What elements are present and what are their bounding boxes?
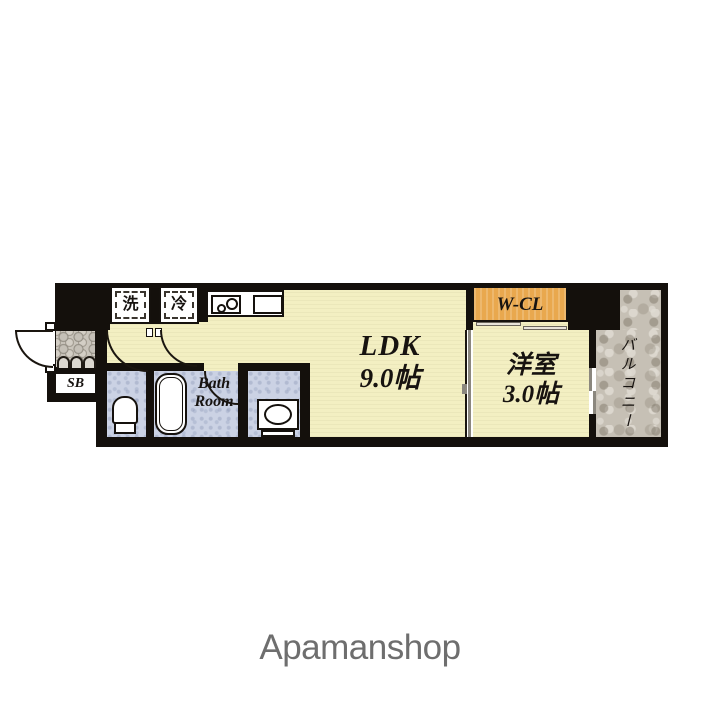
walk-in-closet-label: W-CL — [497, 295, 544, 314]
brand-logo-text: Apamanshop — [259, 628, 460, 667]
wall-bottom — [96, 437, 668, 447]
fridge-space: 冷 — [159, 286, 199, 324]
brand-logo: Apamanshop — [0, 628, 720, 668]
wall-pillar-topleft — [55, 283, 110, 330]
stove-burner-small — [217, 304, 226, 313]
genkan-step-arc-3 — [83, 356, 96, 368]
balcony-window-pane-2 — [593, 391, 596, 414]
genkan-step-arc-1 — [57, 356, 70, 368]
toilet-tank — [114, 422, 136, 434]
washer-space: 洗 — [110, 286, 151, 324]
vanity-sink-bowl — [264, 404, 292, 425]
bathroom-label-line1: Bath — [186, 376, 242, 392]
bathtub-inner-line — [159, 377, 183, 431]
toilet-bowl — [112, 396, 138, 424]
wall-washroom-right — [300, 363, 310, 437]
sliding-door-rail — [468, 330, 471, 437]
vanity-front-strip — [261, 430, 295, 437]
washer-dashed-outline — [115, 291, 146, 319]
fridge-dashed-outline — [164, 291, 194, 319]
floor-plan: SB 洗 冷 W-CL LDK 9.0帖 洋室 — [0, 0, 720, 720]
ldk-label: LDK — [330, 332, 450, 361]
western-room-label: 洋室 — [472, 353, 590, 378]
closet-sliding-door-2 — [523, 326, 567, 330]
shoe-box-label: SB — [67, 377, 84, 391]
vanity-sink-icon — [257, 399, 299, 430]
balcony-label: バルコニー — [613, 333, 639, 435]
entrance-door-swing — [15, 330, 53, 368]
kitchen-counter — [206, 290, 284, 317]
wall-entry-column — [96, 330, 107, 447]
wall-pillar-topright — [568, 283, 620, 330]
closet-sliding-door-1 — [476, 322, 521, 326]
sliding-door-handle — [462, 384, 467, 394]
stove-burner-large — [226, 298, 238, 310]
ldk-size-label: 9.0帖 — [330, 365, 450, 392]
genkan-step-arc-2 — [70, 356, 83, 368]
stove-icon — [211, 295, 241, 314]
bathtub-icon — [155, 373, 187, 435]
western-room-size-label: 3.0帖 — [472, 382, 590, 407]
bathroom-label: Bath Room — [186, 376, 242, 410]
bathroom-label-line2: Room — [186, 394, 242, 410]
toilet-icon — [112, 396, 138, 434]
balcony-area-upper — [620, 290, 661, 330]
wall-toilet-bath — [146, 371, 154, 437]
walk-in-closet: W-CL — [472, 286, 568, 322]
kitchen-sink-icon — [253, 295, 283, 314]
wall-right — [661, 283, 668, 447]
shoe-box: SB — [55, 373, 96, 394]
